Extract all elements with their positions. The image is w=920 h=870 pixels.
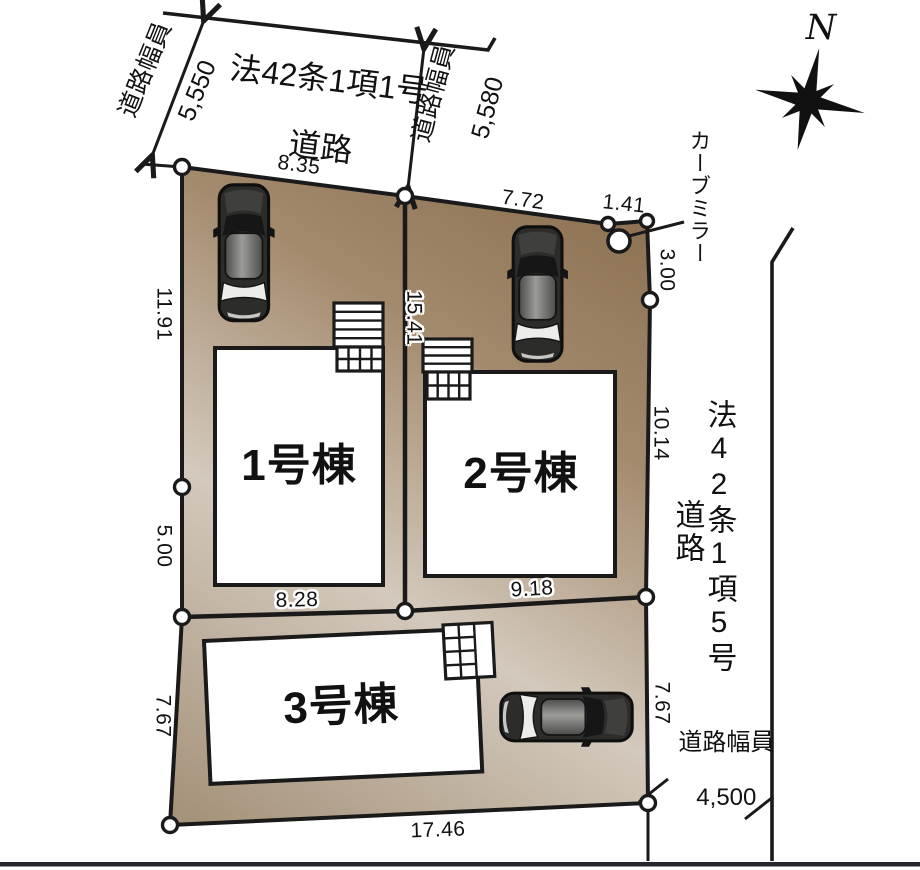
dim-lot2-south-text: 9.18 bbox=[510, 576, 554, 601]
dim-bottom: 17.46 bbox=[410, 817, 466, 842]
building-3-text: 3号棟 bbox=[282, 679, 400, 733]
dim-right-upper: 3.00 bbox=[655, 249, 678, 292]
building-2-entry-tile bbox=[427, 372, 470, 399]
dim-left-upper-text: 11.91 bbox=[153, 287, 176, 341]
dim-right-lower: 7.67 bbox=[650, 682, 673, 725]
dim-lot1-south: 8.28 bbox=[275, 588, 318, 612]
road-width-caption-left: 道路幅員 bbox=[114, 18, 177, 121]
building-1-label: 1号棟 bbox=[241, 442, 356, 490]
dim-lot1-south-text: 8.28 bbox=[275, 588, 318, 612]
building-2-entry-steps bbox=[423, 339, 472, 372]
dim-left-middle-text: 5.00 bbox=[153, 525, 176, 568]
north-label: N bbox=[806, 9, 837, 48]
right-road-name-2: 道路 bbox=[671, 499, 704, 565]
building-1-entry-tile bbox=[337, 347, 383, 371]
site-plan: 法42条1項1号 道路 道路幅員 5,550 道路幅員 5,580 法42条1項… bbox=[0, 0, 920, 870]
dim-right-middle: 10.14 bbox=[649, 405, 672, 460]
right-road-east-edge bbox=[772, 228, 793, 861]
dim-left-upper: 11.91 bbox=[152, 287, 175, 341]
dim-right-middle-text: 10.14 bbox=[650, 405, 673, 460]
dim-lot2-south: 9.18 bbox=[510, 576, 554, 602]
building-1-text: 1号棟 bbox=[241, 441, 356, 490]
north-letter: N bbox=[806, 8, 837, 48]
dim-bottom-text: 17.46 bbox=[410, 817, 466, 842]
bottom-divider-bar bbox=[0, 862, 920, 867]
building-2-text: 2号棟 bbox=[463, 449, 578, 498]
road-width-caption-bottom: 道路幅員 bbox=[678, 729, 774, 756]
dim-right-lower-text: 7.67 bbox=[651, 682, 674, 725]
curve-mirror-label: カーブミラー bbox=[686, 130, 710, 265]
dim-left-middle: 5.00 bbox=[152, 525, 175, 568]
road-width-value-bottom: 4,500 bbox=[696, 784, 756, 811]
right-road-name: 法42条1項5号 bbox=[703, 399, 736, 675]
curve-mirror-text: カーブミラー bbox=[687, 130, 711, 265]
road-width-caption-right: 道路幅員 bbox=[407, 41, 460, 145]
car-lot3 bbox=[501, 687, 632, 746]
road-width-value-right: 5,580 bbox=[466, 74, 509, 142]
building-2-label: 2号棟 bbox=[463, 450, 578, 498]
building-3-label: 3号棟 bbox=[282, 680, 400, 734]
dim-corner-ne: 1.41 bbox=[601, 190, 646, 217]
road-width-value-left: 5,550 bbox=[172, 56, 221, 124]
right-road-name-col2: 道路 bbox=[671, 499, 704, 565]
car-lot1 bbox=[213, 185, 274, 321]
dim-left-lower-text: 7.67 bbox=[152, 695, 175, 738]
building-1-entry-steps bbox=[334, 303, 383, 347]
dim-left-lower: 7.67 bbox=[151, 695, 174, 738]
dim-center-divider: 15.41 bbox=[402, 290, 425, 345]
compass-icon bbox=[745, 37, 876, 162]
dim-right-upper-text: 3.00 bbox=[656, 249, 679, 292]
car-lot2 bbox=[507, 227, 568, 361]
dim-corner-ne-text: 1.41 bbox=[601, 190, 646, 217]
right-road-name-col1: 法42条1項5号 bbox=[703, 399, 736, 675]
curve-mirror-icon bbox=[608, 230, 630, 252]
building-3-entry-porch bbox=[443, 622, 495, 678]
dim-center-divider-text: 15.41 bbox=[403, 290, 426, 345]
